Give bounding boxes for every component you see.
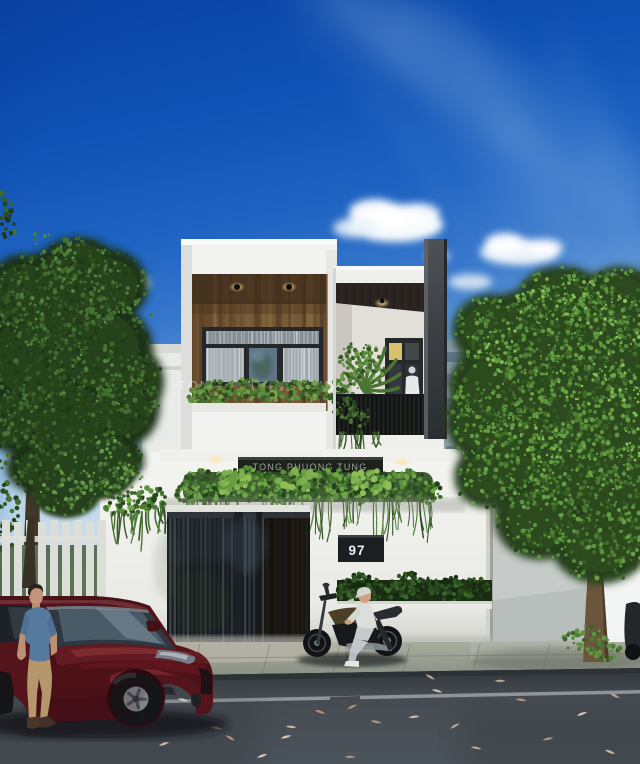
svg-text:97: 97 bbox=[348, 543, 365, 558]
